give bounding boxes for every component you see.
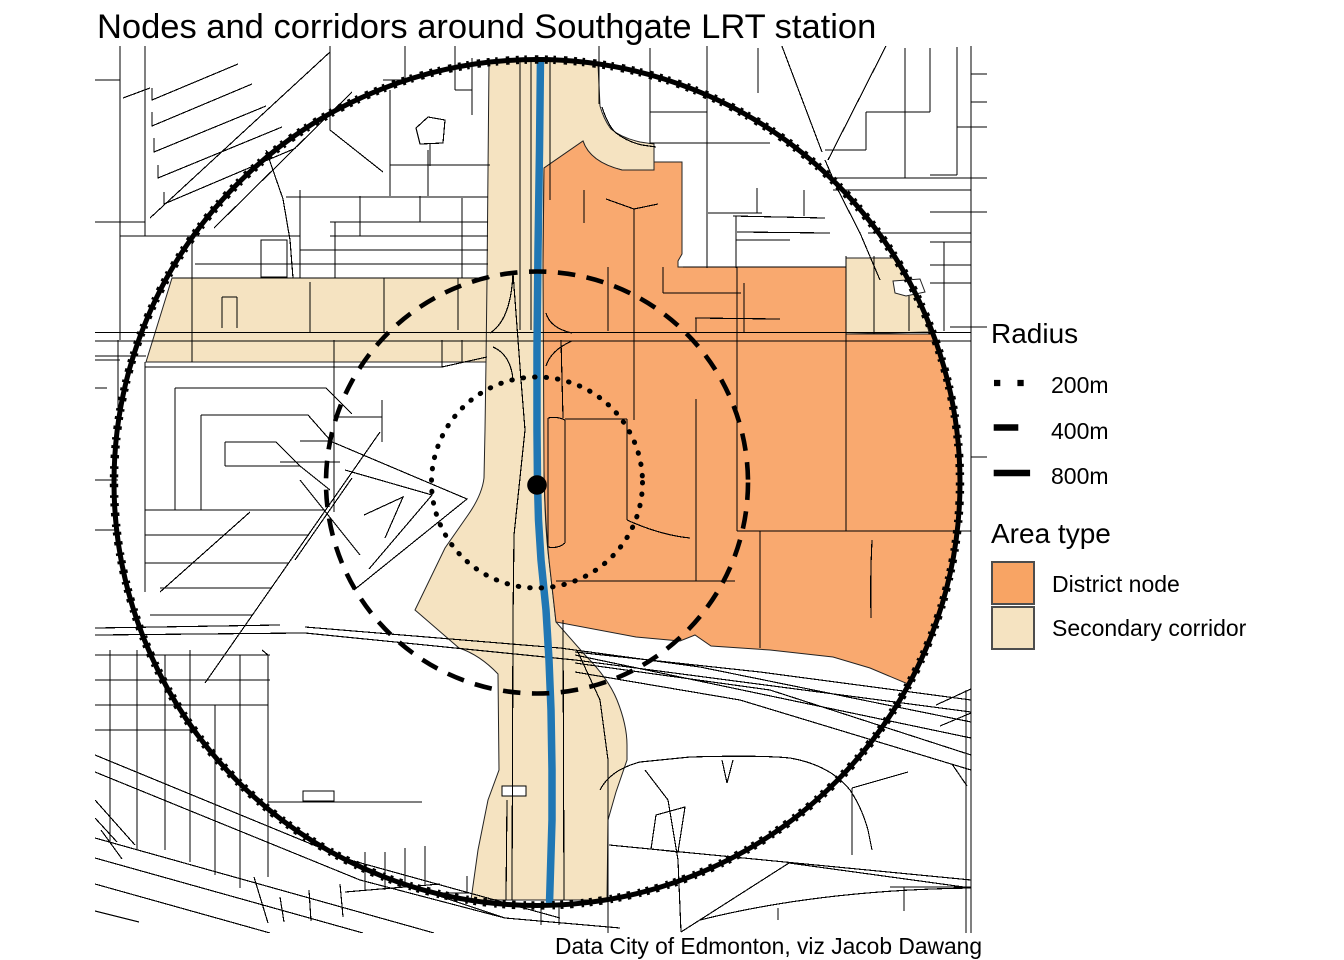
- svg-text:Secondary corridor: Secondary corridor: [1052, 615, 1247, 641]
- svg-text:800m: 800m: [1051, 463, 1109, 489]
- svg-text:200m: 200m: [1051, 372, 1109, 398]
- svg-text:Nodes and corridors around Sou: Nodes and corridors around Southgate LRT…: [97, 8, 876, 46]
- svg-text:Data City of Edmonton, viz Jac: Data City of Edmonton, viz Jacob Dawang: [555, 933, 982, 959]
- svg-text:Radius: Radius: [991, 318, 1078, 349]
- svg-text:Area type: Area type: [991, 518, 1111, 549]
- svg-text:400m: 400m: [1051, 418, 1109, 444]
- svg-text:District node: District node: [1052, 571, 1180, 597]
